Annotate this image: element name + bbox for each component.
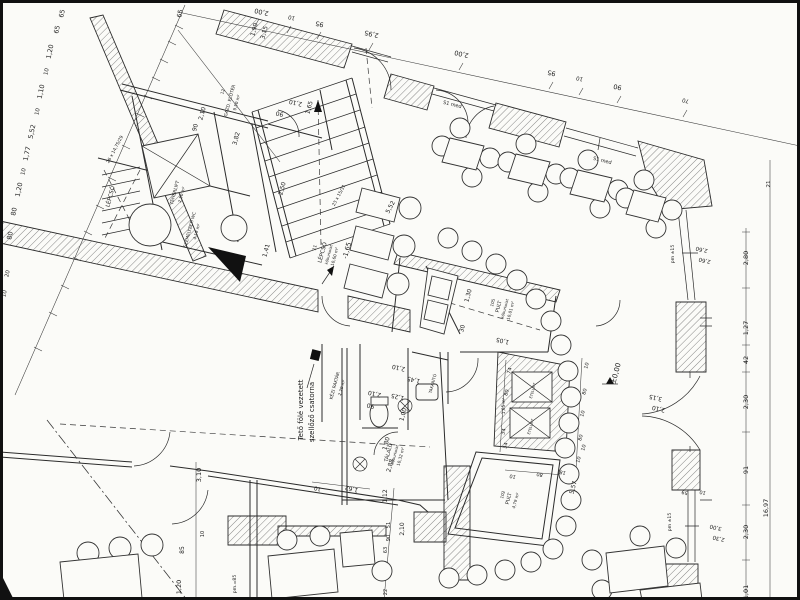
dimension-label: 10 [583, 362, 590, 370]
dimension-label: 65 [57, 9, 67, 19]
dimension-label: 65 [175, 9, 185, 19]
room-area: 1,65 m² [501, 397, 506, 414]
dimension-label: 80 [536, 470, 544, 477]
dimension-label: 95 [547, 68, 557, 78]
dimension-label: 2,10 [197, 106, 207, 121]
dimension-label: 2,60 [698, 256, 712, 265]
dimension-label: 80 [577, 434, 584, 442]
dimension-label: 80 [5, 231, 15, 241]
dimension-label: pm ±15 [670, 245, 676, 264]
north-arrow [322, 266, 334, 284]
dimension-label: 2,30 [712, 534, 726, 543]
dimension-label: 10 [575, 74, 584, 82]
dimension-label: 1,00 [398, 407, 408, 422]
level-marker: ±0,00 [609, 362, 622, 385]
dimension-label: 2,30 [742, 395, 750, 409]
dimension-label: 63 [383, 547, 389, 553]
dimension-label: 90 [275, 109, 284, 118]
dimension-label: 2,10 [391, 363, 406, 373]
kitchen-sink [420, 268, 458, 334]
dimension-label: 42 [742, 356, 750, 364]
dimension-label: 21 [766, 181, 772, 188]
terrace-seating [60, 526, 392, 600]
room-number: 11 [311, 244, 318, 251]
vent-duct-mark [310, 349, 321, 361]
dimension-label: 80 [9, 207, 19, 217]
dimension-label: 85 [179, 546, 186, 554]
dining-table [582, 526, 702, 600]
dimension-label: 10 [509, 472, 517, 479]
dimension-label: 2,95 [364, 28, 380, 39]
dimension-label: 30 [458, 324, 467, 333]
dimension-label: 90 [613, 82, 623, 92]
dimension-label: 2,00 [254, 6, 270, 17]
dimension-label: 1,41 [261, 243, 271, 258]
dimension-label: 22 [383, 589, 389, 595]
dimension-label: 10 [699, 488, 707, 495]
dimension-label: 1,20 [14, 182, 25, 198]
dimension-label: 2,60 [695, 245, 709, 254]
dimension-label: pm ±15 [667, 513, 673, 532]
wall-hatched-layer [0, 10, 712, 598]
dimension-label: 1,30 [463, 288, 473, 303]
dimension-label: 10 [579, 410, 586, 418]
dimension-label: pm.=85 [232, 575, 238, 594]
dimension-label: 3,82 [231, 131, 241, 146]
toilet [370, 397, 388, 427]
dimension-label: 51 [386, 522, 392, 528]
dimension-label: 90 [386, 535, 392, 541]
room-number: 105 [489, 298, 496, 307]
dimension-label: 10 [34, 107, 41, 116]
dimension-label: 23 x 15/31 [331, 184, 347, 208]
dimension-label: 2,30 [742, 525, 750, 539]
dimension-label: 1,77 [22, 146, 33, 162]
dimension-label: 70 [681, 96, 690, 104]
dimension-label: 1,12 [382, 489, 389, 503]
dimension-label: 1,65 [304, 100, 314, 115]
dimension-label: 16,97 [762, 499, 770, 518]
dimension-label: 2,80 [742, 251, 750, 265]
dimension-label: 2,10 [367, 389, 382, 399]
dimension-label: 10 [20, 167, 27, 176]
dimension-label: 1,25 [390, 392, 405, 402]
dimension-label: 1,20 [45, 44, 56, 60]
dimension-label: 91 [742, 466, 750, 474]
dimension-label: 1,10 [36, 84, 47, 100]
dimension-label: 10 [580, 444, 587, 452]
spiral-stair-circle [129, 204, 171, 246]
dimension-label: 3,10 [195, 468, 203, 482]
dimension-label: 10 [313, 484, 322, 492]
room-number: 102 [499, 490, 506, 499]
dimension-label: 1,27 [742, 321, 750, 335]
dimension-label: 3,15 [648, 393, 663, 403]
dimension-label: 20 [4, 269, 11, 278]
dimension-label: 80 [581, 388, 588, 396]
dimension-label: 3,00 [709, 523, 723, 532]
dimension-label: 2,50 [277, 181, 287, 196]
dimension-label: 10 [200, 531, 206, 537]
dimension-label: 1,05 [495, 336, 510, 346]
dimension-label: 65 [52, 25, 62, 35]
dimension-label: 2,10 [288, 98, 303, 108]
dimension-label: 10 [287, 13, 296, 21]
floor-plan-drawing: 65651,20101,10105,521,77101,208080201065… [0, 0, 800, 600]
dimension-label: 5,52 [27, 124, 38, 140]
dimension-label: 2,10 [651, 404, 666, 414]
column-circle [221, 215, 247, 241]
dimension-label: 1,20 [175, 580, 183, 594]
dimension-label: 2,00 [454, 48, 470, 59]
dimension-label: 90 [191, 123, 200, 132]
dimension-label: 95 [315, 19, 325, 29]
dimension-label: 10 [575, 456, 582, 464]
floor-plan-scan: 65651,20101,10105,521,77101,208080201065… [0, 0, 800, 600]
dimension-label: 2,10 [399, 522, 406, 536]
dimension-label: 10 [43, 67, 50, 76]
note-vent-duct: Tető fölé vezetett [296, 379, 305, 441]
note-vent-duct: szellőző csatorna [307, 382, 316, 442]
servery-counters [344, 188, 421, 298]
room-number: 12 [219, 88, 225, 95]
